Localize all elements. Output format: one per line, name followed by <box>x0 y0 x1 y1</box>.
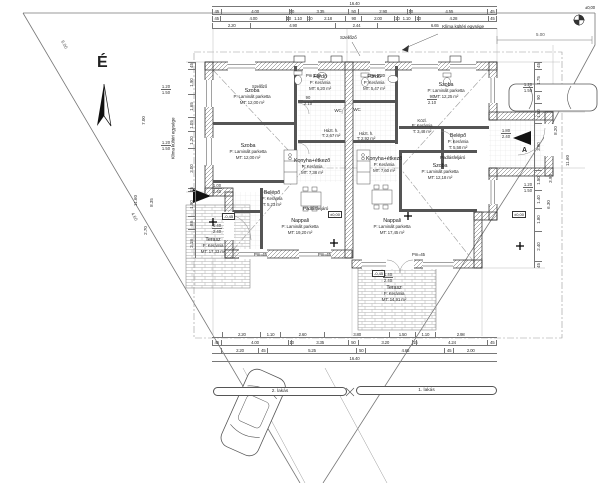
parapet-label-top-1: Pm 2,20 <box>306 73 321 78</box>
opening-dim-4: 1.802.40 <box>501 128 511 139</box>
level-marker-zero-right: ±0,00 <box>512 211 526 218</box>
floor-plan-sheet: É Szoba P: Laminált parketta MT: 12,00 m… <box>0 0 600 483</box>
room-label-terasz-right: Terasz P: Kerámia MT: 14,91 m² <box>382 285 406 302</box>
opening-dim-8: 902.10 <box>427 94 437 105</box>
room-label-hazt-right: Házt. h. T: 2,92 m² <box>357 131 376 142</box>
room-label-hazt-left: Házt. h. T: 2,67 m² <box>322 128 341 139</box>
room-label-nappali-left: Nappali P: Laminált parketta MT: 19,20 m… <box>281 218 318 235</box>
szellozo-annotation-left: Szellőző <box>252 84 267 89</box>
level-marker-zero-left: ±0,00 <box>328 211 342 218</box>
dim-left-total-4: 2.70 <box>143 226 148 235</box>
break-symbol <box>346 388 354 396</box>
dim-right-total-2: 3.90 <box>548 174 553 183</box>
dim-right-total-3: 6.30 <box>546 200 551 209</box>
opening-dim-2: 1.201.50 <box>523 82 533 93</box>
annotation-leaders <box>352 34 438 56</box>
room-label-szoba-2-left: Szoba P: Laminált parketta MT: 12,00 m² <box>229 143 266 160</box>
dim-bottom-row-1: 2.201.102.603.801.501.102.98 <box>212 331 497 338</box>
parapet-label-bottom-3: Pm=45 <box>412 252 425 257</box>
room-label-szoba-1-left: Szoba P: Laminált parketta MT: 12,00 m² <box>233 88 270 105</box>
dim-bottom-total: 16.40 <box>212 355 497 362</box>
room-label-wc-left: WC <box>334 108 341 113</box>
offset-dim-line <box>497 36 592 44</box>
apartment-marker-2: 2. lakás <box>213 387 347 396</box>
floor-plan-linework <box>0 0 600 483</box>
room-label-terasz-left: Terasz P: Kerámia MT: 17,33 m² <box>201 237 225 254</box>
dim-left-total-1: 7.00 <box>141 116 146 125</box>
room-label-szoba-mid-right: Szoba P: Laminált parketta MT: 12,18 m² <box>421 163 458 180</box>
room-label-belepo-left: Belépő P: Kerámia T: 5,23 m² <box>262 190 283 207</box>
parapet-label-bottom-2: Pm=45 <box>318 252 331 257</box>
benchmark-label: ±0,00 <box>585 5 595 10</box>
level-marker-minus-right: -0,45 <box>372 270 385 277</box>
right-offset-dim: 5.00 <box>536 32 545 37</box>
dim-left-total-3: 11.60 <box>133 195 138 206</box>
opening-dim-0: 1.201.50 <box>161 84 171 95</box>
dim-right-total-4: 11.60 <box>565 155 570 166</box>
section-marker-a: A <box>522 147 527 154</box>
room-label-konyha-right: Konyha+étkező P: Kerámia MT: 7,60 m² <box>366 156 402 173</box>
dim-bottom-row-2: 454.00103.35503.20154.2445 <box>212 339 497 346</box>
opening-dim-1: 1.201.50 <box>161 140 171 151</box>
apartment-marker-1: 1. lakás <box>356 386 497 395</box>
opening-dim-6: 1.402.40 <box>212 223 222 234</box>
room-label-konyha-left: Konyha+étkező P: Kerámia MT: 7,38 m² <box>294 158 330 175</box>
level-marker-minus-left: -0,45 <box>222 213 235 220</box>
dim-top-row-1: 454.00103.35502.90104.5545 <box>212 8 497 15</box>
dim-top-total: 16.40 <box>212 0 497 7</box>
dim-bottom-row-3: 2.20455.25504.65452.00 <box>212 347 497 354</box>
klima-annotation-top: Klíma kültéri egysége <box>440 24 486 29</box>
parapet-label-bottom-1: Pm=45 <box>254 252 267 257</box>
dim-right-column: 45 1.75 90 1.50 3.80 1.50 1.40 1.80 2.40… <box>534 62 542 268</box>
north-arrow-icon <box>97 84 111 126</box>
dim-left-column: 45 1.90 1.65 1.05 1.20 3.00 15 1.90 88 2… <box>188 62 196 258</box>
benchmark-icon <box>573 14 585 26</box>
dim-left-total-2: 8.35 <box>149 198 154 207</box>
room-label-kozl-right: Közl. P: Kerámia T: 3,48 m² <box>412 118 433 134</box>
dim-right-total-1: 8.20 <box>553 126 558 135</box>
room-label-belepo-right: Belépő P: Kerámia T: 5,58 m² <box>448 133 469 150</box>
padlasfeljaro-annotation-left: Padlásfeljáró <box>303 206 328 211</box>
padlasfeljaro-annotation-right: Padlásfeljáró <box>440 155 465 160</box>
szellozo-annotation-top: Szellőző <box>340 35 357 40</box>
opening-dim-7: 902.10 <box>303 95 313 106</box>
room-label-nappali-right: Nappali P: Laminált parketta MT: 17,45 m… <box>373 218 410 235</box>
opening-dim-5: 1.002.40 <box>212 183 222 194</box>
opening-dim-3: 1.201.50 <box>523 182 533 193</box>
room-label-wc-right: WC <box>353 107 360 112</box>
north-label: É <box>97 54 108 72</box>
dim-top-row-2: 454.00101.10102.18902.00101.10104.2845 <box>212 15 497 22</box>
klima-annotation-left: Klíma kültéri egysége <box>170 118 175 160</box>
parapet-label-top-2: Pm 2,20 <box>370 73 385 78</box>
